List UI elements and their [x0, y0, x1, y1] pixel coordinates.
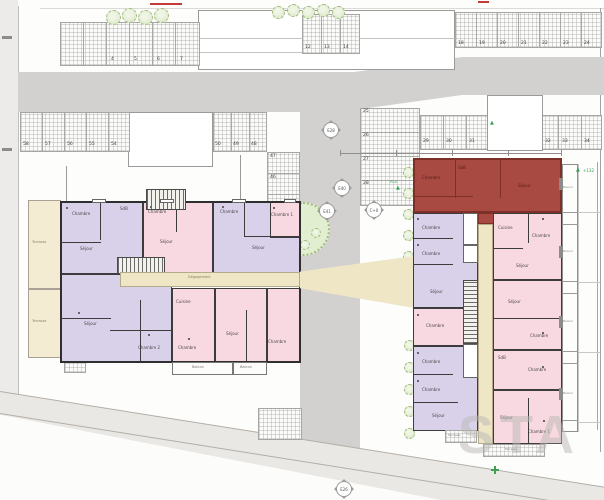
room-label: Terrasse: [32, 241, 46, 245]
room-label: Chambre: [532, 234, 550, 238]
red-boundary-mark: [478, 1, 489, 3]
marker-e40-label: E40: [334, 180, 350, 196]
balcony-divider: [562, 293, 578, 294]
core-room: [463, 245, 478, 263]
room-label: Séjour: [518, 184, 531, 188]
wall: [244, 202, 245, 236]
room-label: Dégagement: [188, 276, 211, 280]
room-label: Chambre: [72, 212, 90, 216]
room-label: Séjour: [84, 322, 97, 326]
stall-line: [340, 14, 341, 54]
room-label: Chambre: [530, 334, 548, 338]
tree-icon: [272, 6, 285, 19]
stall-line: [83, 22, 84, 66]
stall-number: 13: [324, 46, 330, 51]
stall-number: 18: [458, 42, 464, 47]
wall: [413, 374, 453, 375]
stall-line: [360, 132, 420, 133]
room-label: Chambre: [422, 360, 440, 364]
paved-area: [258, 408, 302, 440]
stall-number: 47: [270, 155, 276, 160]
building-footprint: [487, 95, 543, 151]
level-marker-label: +132: [583, 169, 594, 173]
tree-icon: [300, 240, 310, 250]
table-icon: [78, 312, 80, 314]
garden-line: [578, 164, 579, 432]
room-label: Chambre: [178, 346, 196, 350]
marker-e41: E41: [319, 203, 335, 219]
stall-number: 7: [180, 58, 183, 63]
marker-e40: E40: [334, 180, 350, 196]
garden-line: [578, 212, 600, 213]
stall-number: 50: [215, 143, 221, 148]
bed-icon: [150, 206, 152, 208]
balcony-divider: [562, 212, 578, 213]
wall: [413, 264, 453, 265]
red-boundary-mark: [150, 3, 182, 5]
bed-icon: [66, 207, 68, 209]
stall-number: 26: [363, 134, 369, 139]
wall: [244, 236, 300, 237]
stall-number: 28: [363, 182, 369, 187]
balcony-divider: [562, 363, 578, 364]
property-line: [240, 155, 241, 202]
room-label: Cuisine: [176, 300, 191, 304]
wall: [528, 213, 529, 243]
parking-row: [455, 12, 602, 48]
room-label: Chambre: [268, 340, 286, 344]
dimension-line: [340, 153, 562, 154]
tree-icon: [302, 6, 315, 19]
room-label: Chambre: [422, 252, 440, 256]
parking-row: [213, 112, 267, 152]
stall-number: 46: [270, 176, 276, 181]
room-label: Terrasse: [32, 320, 46, 324]
stall-number: 27: [363, 158, 369, 163]
stall-line: [360, 156, 420, 157]
room-label: Cuisine: [498, 226, 513, 230]
bed-icon: [417, 352, 419, 354]
stall-number: 19: [479, 42, 485, 47]
site-plan-canvas: 4567121314181920212223245857565554504948…: [0, 0, 604, 500]
apartment-red: [413, 158, 562, 213]
stall-number: 49: [233, 143, 239, 148]
stall-number: 29: [423, 140, 429, 145]
stall-line: [476, 12, 477, 48]
wall: [493, 318, 562, 319]
apartment-pink: [493, 280, 562, 350]
stall-line: [581, 12, 582, 48]
stall-number: 24: [584, 42, 590, 47]
stall-number: 57: [45, 143, 51, 148]
level-marker-label: PCA: [390, 181, 397, 185]
stall-number: 5: [134, 58, 137, 63]
stall-number: 54: [111, 143, 117, 148]
watermark: STA: [458, 404, 580, 466]
room-label: Chambre: [148, 210, 166, 214]
bed-icon: [222, 206, 224, 208]
dimension-tick: [452, 150, 453, 156]
stall-line: [152, 22, 153, 66]
stall-line: [466, 115, 467, 150]
wall: [61, 242, 101, 243]
room-label: Chambre: [528, 368, 546, 372]
marker-e26-label: E26: [336, 481, 352, 497]
wall: [61, 318, 111, 319]
wall: [100, 202, 101, 240]
marker-c0: C+0: [366, 202, 382, 218]
wall: [413, 402, 458, 403]
stall-line: [231, 112, 232, 152]
dimension-tick: [508, 150, 509, 156]
balcony-divider: [562, 224, 578, 225]
tree-icon: [317, 4, 330, 17]
room-label: Séjour: [508, 300, 521, 304]
staircase: [463, 280, 478, 344]
stall-line: [560, 12, 561, 48]
balcony-divider: [562, 351, 578, 352]
stall-number: 21: [521, 42, 527, 47]
window: [232, 199, 246, 203]
stall-number: 33: [562, 140, 568, 145]
wall-red: [413, 196, 473, 197]
dimension-tick: [561, 150, 562, 156]
room-label: SdB: [120, 207, 128, 211]
stall-line: [518, 12, 519, 48]
stall-line: [321, 14, 322, 54]
window: [284, 199, 296, 203]
room-label: Chambre: [422, 176, 440, 180]
stall-line: [558, 115, 559, 150]
stall-number: 58: [23, 143, 29, 148]
core-room: [463, 344, 478, 378]
bed-icon: [148, 334, 150, 336]
terrace: [28, 200, 61, 289]
room-label: Chambre: [220, 210, 238, 214]
bed-icon: [542, 218, 544, 220]
wall: [493, 248, 523, 249]
garden-line: [578, 422, 600, 423]
stall-number: 48: [251, 143, 257, 148]
level-marker: ▲: [490, 121, 494, 126]
stall-number: 31: [469, 140, 475, 145]
room-label: Séjour: [226, 332, 239, 336]
stall-line: [581, 115, 582, 150]
tree-icon: [154, 8, 169, 23]
parking-row: [60, 22, 200, 66]
stall-number: 34: [584, 140, 590, 145]
survey-mark: [2, 36, 12, 39]
wall-red: [455, 158, 456, 198]
room-label: Séjour: [432, 414, 445, 418]
room-label: Séjour: [80, 247, 93, 251]
stall-number: 12: [305, 46, 311, 51]
stall-number: 4: [111, 58, 114, 63]
room-label: Chambre 2: [138, 346, 160, 350]
room-label: Séjour: [160, 240, 173, 244]
stall-number: 25: [363, 110, 369, 115]
stall-line: [106, 22, 107, 66]
stall-number: 20: [500, 42, 506, 47]
stall-line: [497, 12, 498, 48]
road-west: [18, 72, 360, 112]
building-footprint: [128, 112, 213, 167]
level-marker: ▲: [396, 186, 400, 191]
core-room: [463, 213, 478, 245]
wall: [413, 238, 453, 239]
stall-number: 22: [542, 42, 548, 47]
room-label: Chambre: [422, 388, 440, 392]
road-east: [462, 57, 604, 95]
marker-e26: E26: [336, 481, 352, 497]
room-label: Balcon: [563, 186, 573, 189]
stall-number: 56: [67, 143, 73, 148]
bed-icon: [417, 314, 419, 316]
room-label: Séjour: [252, 246, 265, 250]
stall-number: 55: [89, 143, 95, 148]
stall-line: [175, 22, 176, 66]
room-label: Balcon: [240, 366, 252, 370]
property-line: [66, 166, 67, 202]
stall-line: [86, 112, 87, 152]
stall-line: [267, 194, 300, 195]
room-label: SdB: [458, 166, 466, 170]
bed-icon: [417, 380, 419, 382]
tree-icon: [138, 10, 153, 25]
stall-number: 30: [446, 140, 452, 145]
stall-number: 6: [157, 58, 160, 63]
room-label: Chambre: [422, 226, 440, 230]
stall-number: 14: [343, 46, 349, 51]
stall-line: [267, 173, 300, 174]
wall: [110, 330, 172, 331]
room-label: Balcon: [563, 320, 573, 323]
bed-icon: [273, 207, 275, 209]
room-label: Balcon: [192, 366, 204, 370]
dimension-line: [597, 162, 598, 430]
dimension-tick: [340, 150, 341, 156]
room-label: Balcon: [563, 392, 573, 395]
wall-red: [500, 158, 501, 198]
stall-line: [539, 12, 540, 48]
stall-line: [443, 115, 444, 150]
tree-icon: [287, 4, 300, 17]
marker-c0-label: C+0: [366, 202, 382, 218]
room-label: SdB: [498, 356, 506, 360]
terrace: [28, 289, 61, 358]
tree-icon: [122, 8, 137, 23]
room-label: Balcon: [563, 250, 573, 253]
garden-line: [578, 282, 600, 283]
stall-line: [64, 112, 65, 152]
stall-number: 32: [545, 140, 551, 145]
garden-line: [578, 352, 600, 353]
survey-mark: [2, 148, 12, 151]
marker-e28-label: E28: [323, 122, 339, 138]
stall-line: [42, 112, 43, 152]
stall-line: [129, 22, 130, 66]
window: [92, 199, 106, 203]
stall-line: [108, 112, 109, 152]
plant-mark: [491, 469, 499, 471]
bed-icon: [417, 244, 419, 246]
window: [160, 199, 174, 203]
marker-e41-label: E41: [319, 203, 335, 219]
stall-number: 23: [563, 42, 569, 47]
room-label: Chambre 1: [271, 213, 293, 217]
wall: [246, 310, 247, 362]
level-marker: ▲: [576, 168, 580, 173]
bed-icon: [417, 218, 419, 220]
marker-e28: E28: [323, 122, 339, 138]
bed-icon: [188, 338, 190, 340]
room-label: Séjour: [516, 264, 529, 268]
room-label: Chambre: [426, 324, 444, 328]
wall: [140, 300, 141, 362]
stall-line: [249, 112, 250, 152]
balcony-divider: [562, 281, 578, 282]
room-label: Séjour: [430, 290, 443, 294]
tree-icon: [106, 10, 121, 25]
dimension-tick: [396, 150, 397, 156]
tree-icon: [311, 228, 321, 238]
tree-icon: [332, 6, 345, 19]
